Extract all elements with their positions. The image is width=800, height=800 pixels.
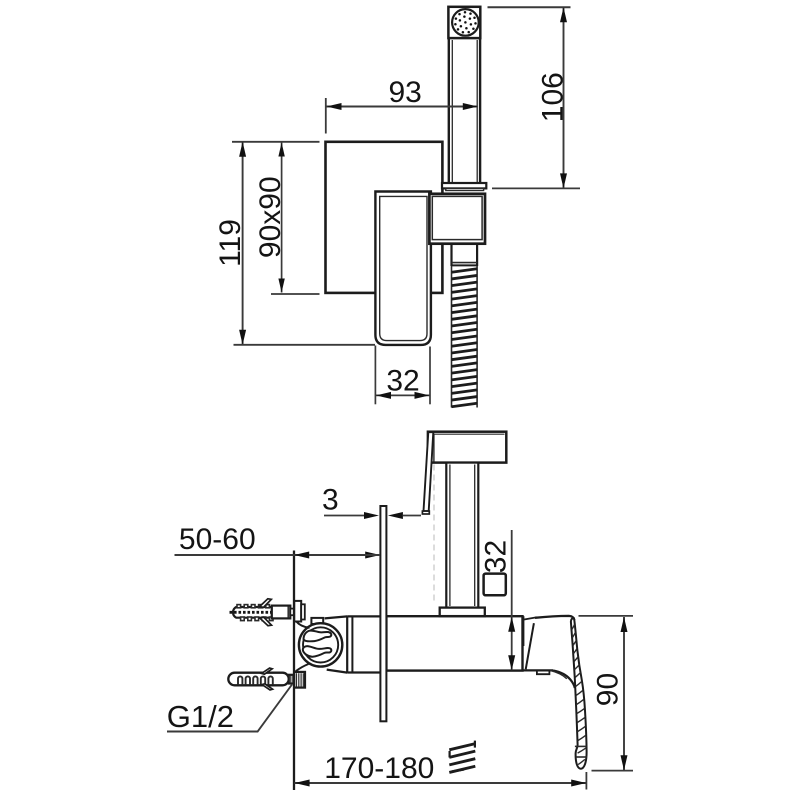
- svg-text:119: 119: [214, 219, 247, 267]
- svg-text:170-180: 170-180: [324, 752, 434, 785]
- svg-text:90: 90: [591, 673, 624, 706]
- svg-text:93: 93: [389, 76, 422, 109]
- svg-text:3: 3: [322, 484, 339, 517]
- svg-text:G1/2: G1/2: [167, 699, 234, 734]
- svg-text:106: 106: [537, 72, 570, 122]
- svg-text:50-60: 50-60: [179, 523, 256, 556]
- svg-text:90x90: 90x90: [254, 176, 287, 258]
- svg-text:32: 32: [386, 364, 419, 397]
- svg-text:32: 32: [480, 540, 513, 573]
